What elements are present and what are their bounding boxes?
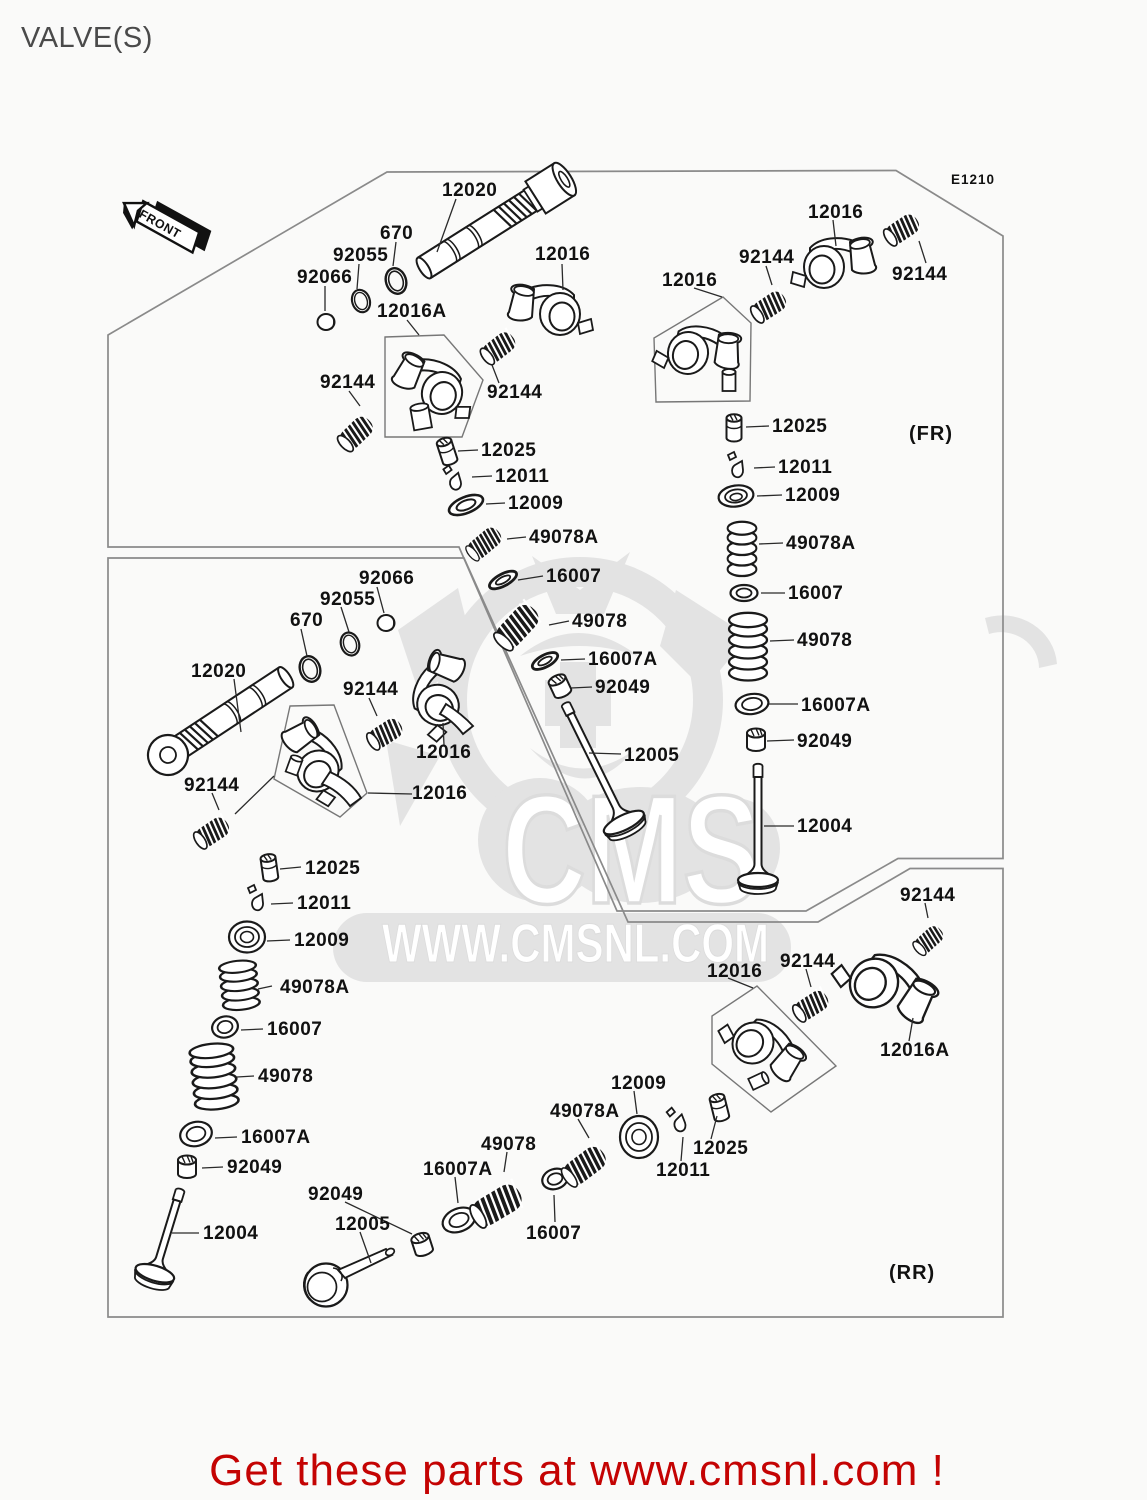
svg-text:12009: 12009 [294,930,349,951]
svg-text:92049: 92049 [308,1184,363,1205]
svg-text:49078A: 49078A [529,527,599,548]
svg-text:12016: 12016 [535,244,590,265]
svg-text:49078: 49078 [797,630,852,651]
svg-text:16007A: 16007A [588,649,658,670]
svg-text:16007: 16007 [267,1019,322,1040]
svg-text:670: 670 [380,223,413,244]
svg-text:92144: 92144 [892,264,947,285]
svg-text:12016: 12016 [662,270,717,291]
svg-text:12016: 12016 [412,783,467,804]
svg-text:E1210: E1210 [951,172,995,187]
svg-text:92066: 92066 [297,267,352,288]
svg-text:CMS: CMS [502,763,760,936]
svg-text:12011: 12011 [656,1160,710,1181]
svg-text:12005: 12005 [335,1214,390,1235]
svg-text:92144: 92144 [780,951,835,972]
svg-text:92049: 92049 [227,1157,282,1178]
svg-text:(FR): (FR) [909,423,953,445]
svg-text:Get these parts at www.cmsnl.c: Get these parts at www.cmsnl.com ! [209,1446,945,1495]
svg-text:92055: 92055 [320,589,375,610]
svg-text:12009: 12009 [508,493,563,514]
svg-text:92144: 92144 [320,372,375,393]
svg-text:(RR): (RR) [889,1262,935,1284]
svg-text:92049: 92049 [595,677,650,698]
svg-text:49078: 49078 [572,611,627,632]
svg-text:12011: 12011 [297,893,351,914]
svg-text:12025: 12025 [693,1138,748,1159]
svg-text:12004: 12004 [797,816,852,837]
svg-text:16007A: 16007A [423,1159,493,1180]
svg-text:92055: 92055 [333,245,388,266]
svg-text:12016A: 12016A [377,301,447,322]
svg-text:12025: 12025 [305,858,360,879]
svg-text:16007A: 16007A [241,1127,311,1148]
svg-text:92144: 92144 [900,885,955,906]
svg-text:12016: 12016 [808,202,863,223]
svg-text:12004: 12004 [203,1223,258,1244]
svg-text:92049: 92049 [797,731,852,752]
svg-text:670: 670 [290,610,323,631]
svg-text:VALVE(S): VALVE(S) [21,22,153,54]
svg-text:92144: 92144 [184,775,239,796]
svg-text:92066: 92066 [359,568,414,589]
svg-text:49078A: 49078A [550,1101,620,1122]
svg-text:12009: 12009 [611,1073,666,1094]
svg-text:12011: 12011 [778,457,832,478]
svg-text:12011: 12011 [495,466,549,487]
svg-text:92144: 92144 [739,247,794,268]
svg-text:12016: 12016 [707,961,762,982]
svg-text:12025: 12025 [481,440,536,461]
svg-text:16007: 16007 [526,1223,581,1244]
svg-text:92144: 92144 [487,382,542,403]
svg-text:12016A: 12016A [880,1040,950,1061]
svg-text:49078A: 49078A [786,533,856,554]
svg-text:12005: 12005 [624,745,679,766]
svg-text:12009: 12009 [785,485,840,506]
svg-text:16007: 16007 [546,566,601,587]
svg-text:12025: 12025 [772,416,827,437]
svg-text:49078: 49078 [481,1134,536,1155]
svg-text:12020: 12020 [191,661,246,682]
svg-text:16007A: 16007A [801,695,871,716]
svg-text:16007: 16007 [788,583,843,604]
svg-text:12020: 12020 [442,180,497,201]
svg-text:92144: 92144 [343,679,398,700]
svg-text:49078: 49078 [258,1066,313,1087]
svg-text:12016: 12016 [416,742,471,763]
svg-text:49078A: 49078A [280,977,350,998]
